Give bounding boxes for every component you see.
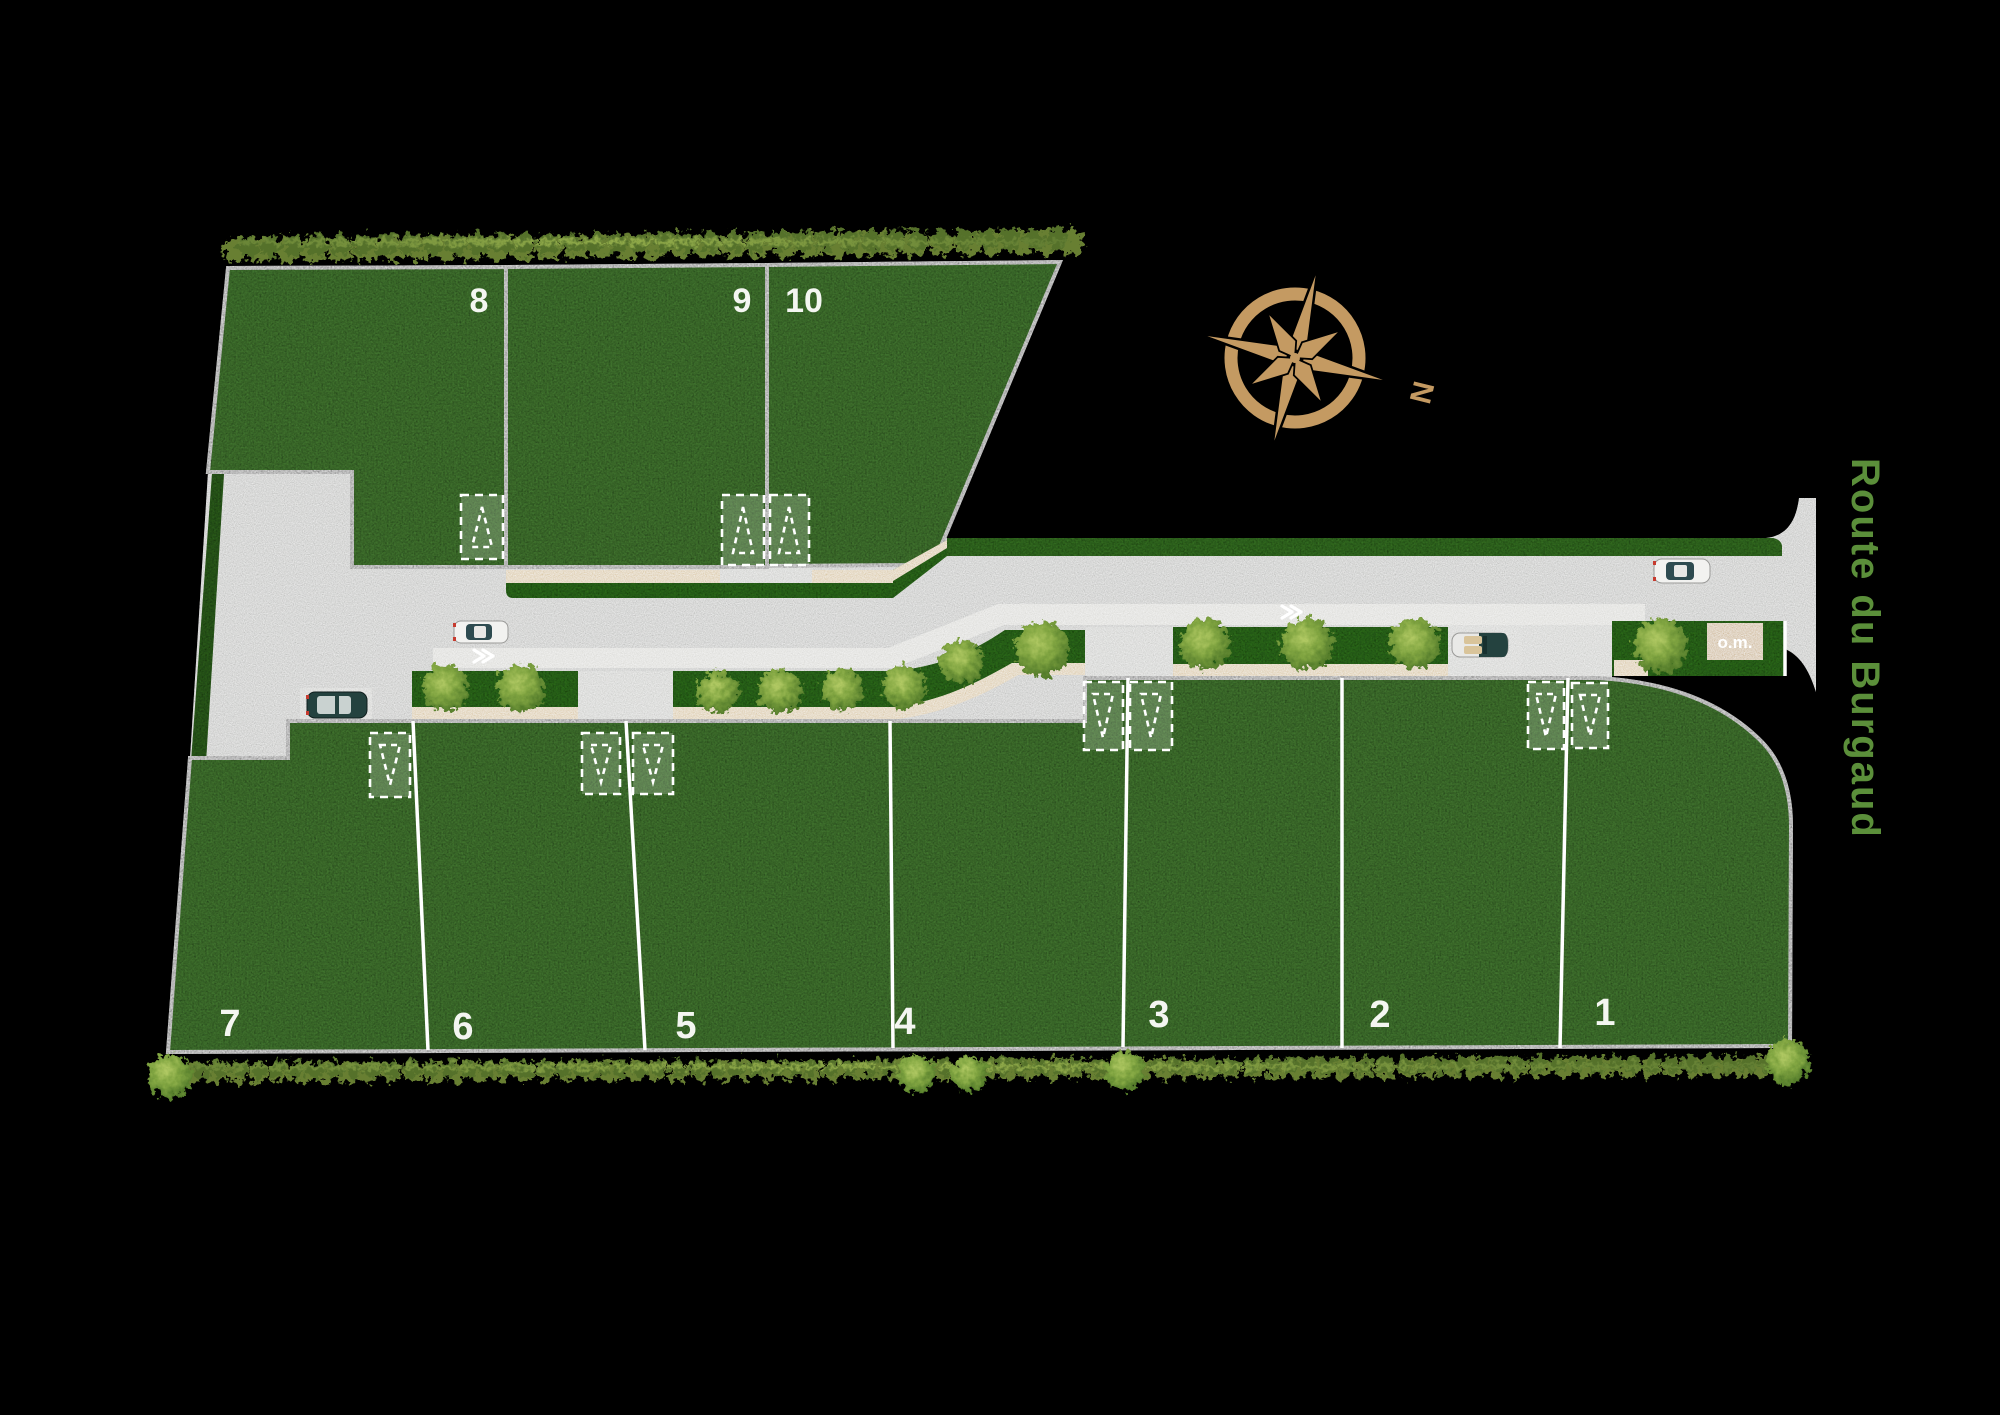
sidewalk-tan-left2 xyxy=(812,570,893,583)
entrance-marker-lot8 xyxy=(461,495,503,559)
entrance-marker-lot1 xyxy=(1572,683,1608,748)
driveway-lots-2-1 xyxy=(1522,625,1612,678)
car-white-icon xyxy=(453,621,508,643)
entrance-marker-lot10 xyxy=(770,495,809,565)
tree-icon xyxy=(882,665,926,709)
tree-icon xyxy=(1390,619,1440,669)
tree-icon xyxy=(1281,618,1333,670)
lot-label-5: 5 xyxy=(675,1005,696,1047)
entrance-marker-lot3 xyxy=(1130,682,1172,750)
sidewalk-tan-left xyxy=(506,570,720,583)
compass-rose-icon: N xyxy=(1173,240,1440,476)
tree-icon xyxy=(1105,1051,1145,1091)
lot-label-9: 9 xyxy=(733,282,752,320)
tree-icon xyxy=(1766,1040,1810,1084)
tree-icon xyxy=(1180,619,1230,669)
lot-label-8: 8 xyxy=(470,282,489,320)
tree-icon xyxy=(1633,619,1687,673)
entrance-marker-lot2 xyxy=(1528,682,1564,749)
lot-label-2: 2 xyxy=(1369,994,1390,1036)
tree-icon xyxy=(497,664,545,712)
tree-icon xyxy=(697,671,739,713)
tree-icon xyxy=(821,669,863,711)
lot-label-7: 7 xyxy=(219,1003,240,1045)
sidewalk-green-left xyxy=(506,583,893,598)
tree-icon xyxy=(758,669,802,713)
compass-north-label: N xyxy=(1403,378,1440,407)
lot-label-10: 10 xyxy=(785,282,823,320)
lot-label-1: 1 xyxy=(1594,992,1615,1034)
site-plan-canvas: 8 9 10 7 6 5 4 3 2 1 o.m. xyxy=(0,0,2000,1415)
driveway-lots-6-5 xyxy=(578,671,673,721)
car-convertible-icon xyxy=(1452,633,1508,657)
driveway-lots-4-3 xyxy=(1085,627,1173,678)
lot-label-3: 3 xyxy=(1148,994,1169,1036)
tree-icon xyxy=(898,1055,936,1093)
entrance-marker-lot9 xyxy=(722,495,764,565)
top-hedge-front xyxy=(248,239,1060,246)
subdivision-plan: 8 9 10 7 6 5 4 3 2 1 o.m. xyxy=(0,0,2000,1415)
entrance-marker-lot6 xyxy=(582,733,620,794)
lot-label-6: 6 xyxy=(452,1006,473,1048)
lot-label-4: 4 xyxy=(894,1001,915,1043)
tree-icon xyxy=(951,1056,987,1092)
entrance-marker-lot5 xyxy=(633,733,673,794)
north-green-strip xyxy=(947,538,1782,556)
entrance-marker-lot4 xyxy=(1084,682,1123,750)
tree-icon xyxy=(423,665,469,711)
tree-icon xyxy=(940,640,984,684)
om-label: o.m. xyxy=(1718,633,1753,652)
entrance-marker-lot7 xyxy=(370,733,410,797)
van-dark-icon xyxy=(306,692,367,718)
car-white-icon xyxy=(1653,559,1710,583)
tree-icon xyxy=(148,1054,192,1098)
tree-icon xyxy=(1015,622,1069,676)
road-name-label: Route du Burgaud xyxy=(1843,458,1887,839)
